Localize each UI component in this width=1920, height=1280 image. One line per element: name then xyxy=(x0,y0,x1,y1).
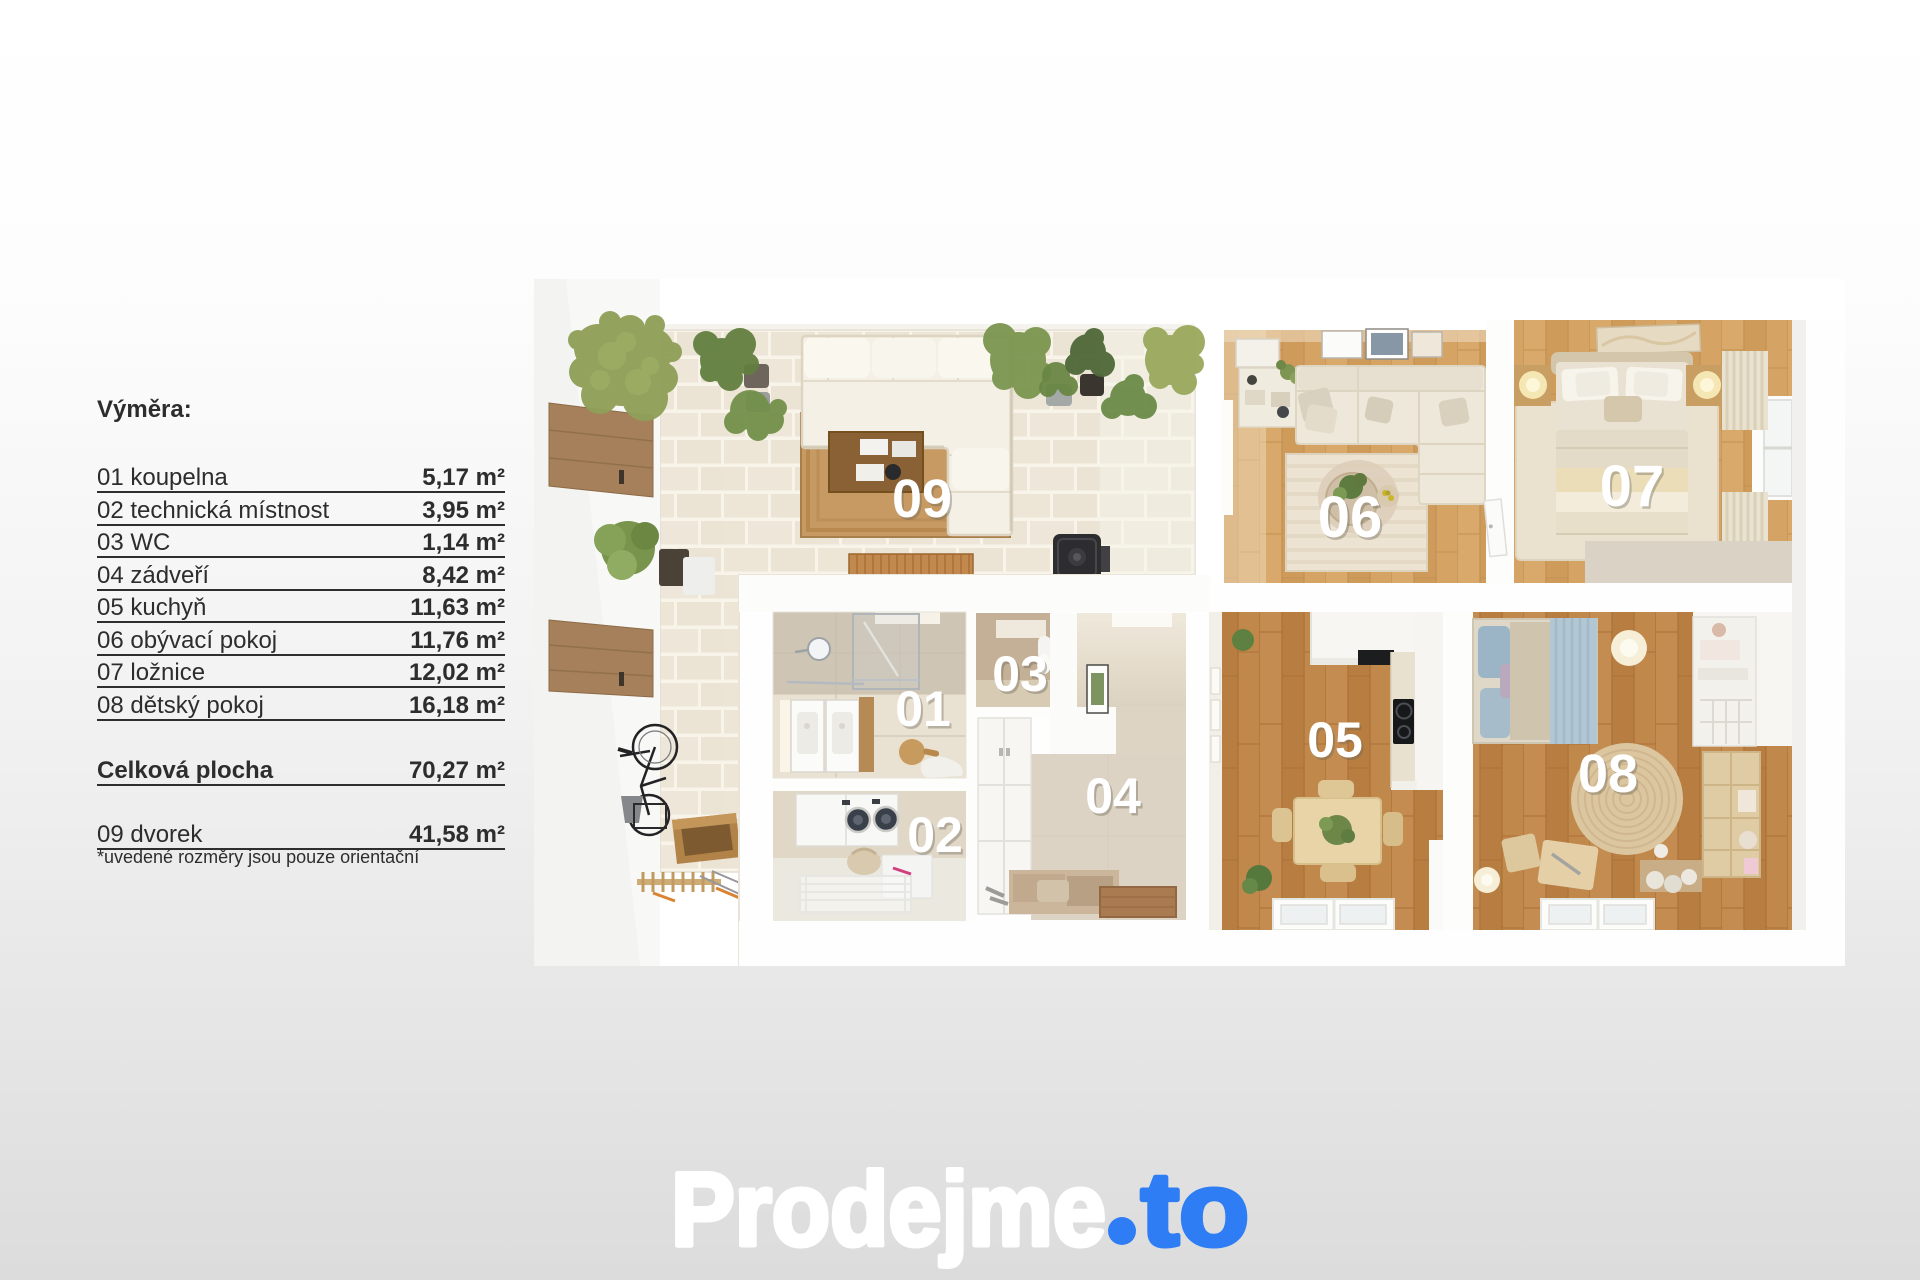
svg-text:03: 03 xyxy=(992,646,1048,702)
svg-text:07: 07 xyxy=(1600,454,1665,519)
svg-text:01: 01 xyxy=(895,681,951,737)
svg-text:04: 04 xyxy=(1085,768,1141,824)
svg-text:05: 05 xyxy=(1307,712,1363,768)
svg-text:Prodejme: Prodejme xyxy=(671,1152,1106,1268)
svg-text:to: to xyxy=(1141,1152,1249,1268)
svg-text:06: 06 xyxy=(1318,485,1383,550)
svg-text:08: 08 xyxy=(1578,744,1638,804)
svg-text:02: 02 xyxy=(907,807,963,863)
svg-text:09: 09 xyxy=(892,469,952,529)
